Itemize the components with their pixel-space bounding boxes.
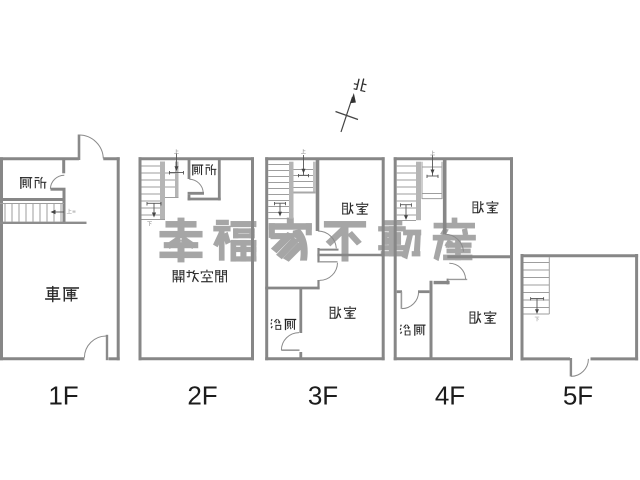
svg-text:1F: 1F [48,381,78,411]
svg-text:5F: 5F [563,381,593,411]
svg-text:4F: 4F [435,381,465,411]
svg-text:3F: 3F [308,381,338,411]
svg-text:2F: 2F [187,381,217,411]
